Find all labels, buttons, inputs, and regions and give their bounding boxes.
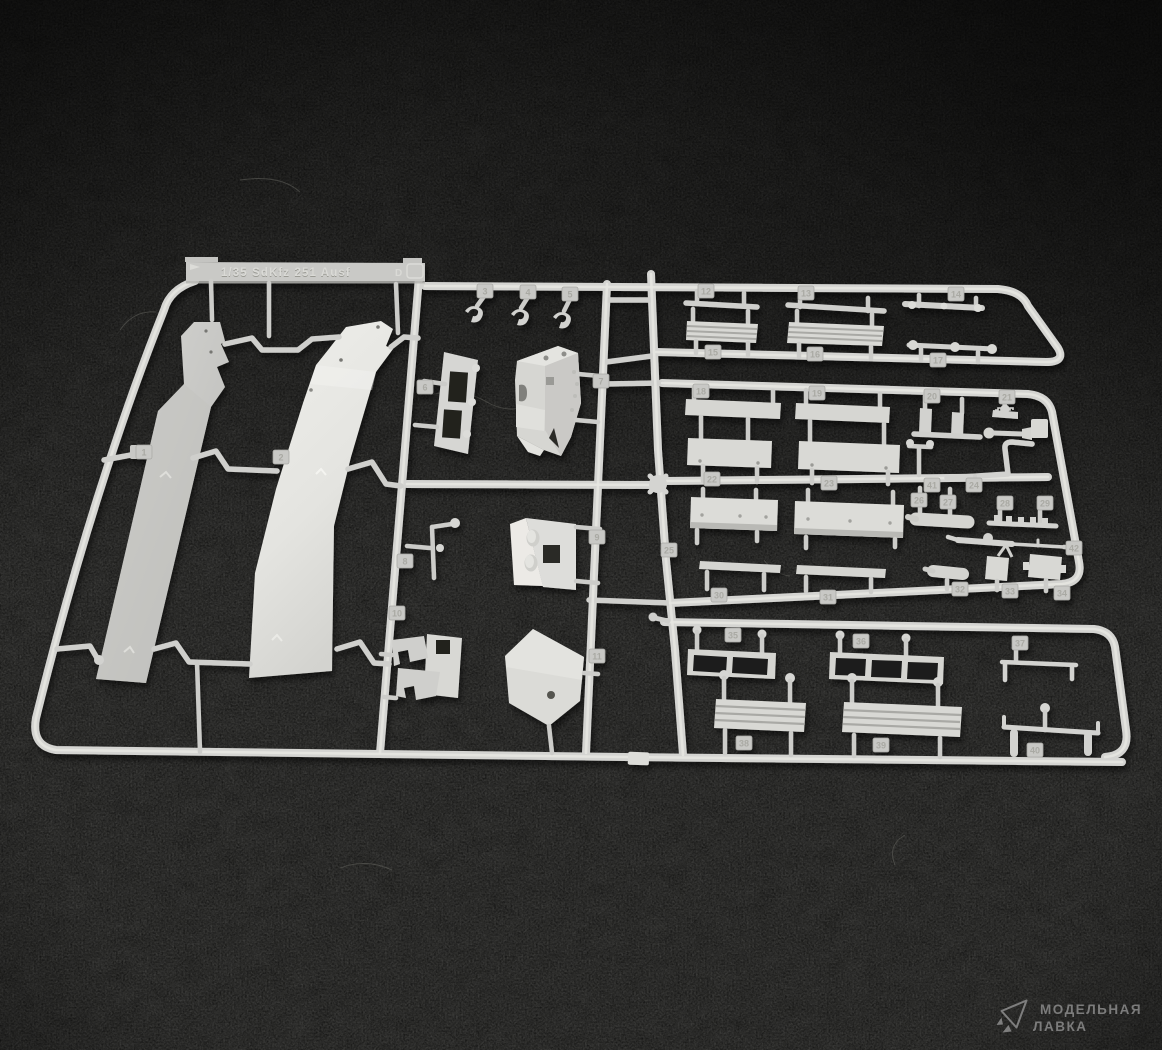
svg-text:34: 34 (1057, 589, 1067, 599)
svg-text:40: 40 (1030, 746, 1040, 756)
svg-text:25: 25 (664, 546, 674, 556)
svg-text:ЛАВКА: ЛАВКА (1033, 1019, 1087, 1034)
svg-text:13: 13 (801, 289, 811, 299)
svg-text:16: 16 (810, 350, 820, 360)
svg-text:33: 33 (1005, 587, 1015, 597)
svg-text:2: 2 (278, 453, 283, 463)
svg-text:21: 21 (1002, 393, 1012, 403)
svg-text:1: 1 (141, 448, 146, 458)
svg-text:29: 29 (1040, 499, 1050, 509)
svg-text:9: 9 (594, 533, 599, 543)
svg-text:20: 20 (927, 392, 937, 402)
svg-text:39: 39 (876, 741, 886, 751)
svg-text:35: 35 (728, 631, 738, 641)
svg-text:23: 23 (824, 479, 834, 489)
svg-text:32: 32 (955, 585, 965, 595)
svg-text:22: 22 (707, 475, 717, 485)
svg-text:38: 38 (739, 739, 749, 749)
svg-text:36: 36 (856, 637, 866, 647)
svg-text:19: 19 (812, 389, 822, 399)
svg-text:3: 3 (482, 287, 487, 297)
svg-text:31: 31 (823, 593, 833, 603)
svg-text:18: 18 (696, 387, 706, 397)
svg-text:7: 7 (598, 377, 603, 387)
svg-text:41: 41 (927, 481, 937, 491)
svg-text:МОДЕЛЬНАЯ: МОДЕЛЬНАЯ (1040, 1002, 1142, 1017)
svg-text:15: 15 (708, 348, 718, 358)
svg-text:D: D (395, 268, 402, 279)
svg-text:4: 4 (525, 288, 530, 298)
svg-text:5: 5 (567, 290, 572, 300)
svg-text:11: 11 (592, 652, 602, 662)
svg-text:27: 27 (943, 498, 953, 508)
svg-text:30: 30 (714, 591, 724, 601)
svg-text:8: 8 (402, 557, 407, 567)
svg-text:17: 17 (933, 356, 943, 366)
svg-text:24: 24 (969, 481, 979, 491)
svg-text:28: 28 (1000, 499, 1010, 509)
svg-text:14: 14 (951, 290, 961, 300)
svg-text:6: 6 (422, 383, 427, 393)
svg-text:10: 10 (392, 609, 402, 619)
svg-text:26: 26 (914, 496, 924, 506)
svg-text:37: 37 (1015, 639, 1025, 649)
svg-text:1/35 SdKfz 251 Ausf: 1/35 SdKfz 251 Ausf (221, 267, 351, 279)
svg-text:12: 12 (701, 287, 711, 297)
svg-text:42: 42 (1069, 544, 1079, 554)
